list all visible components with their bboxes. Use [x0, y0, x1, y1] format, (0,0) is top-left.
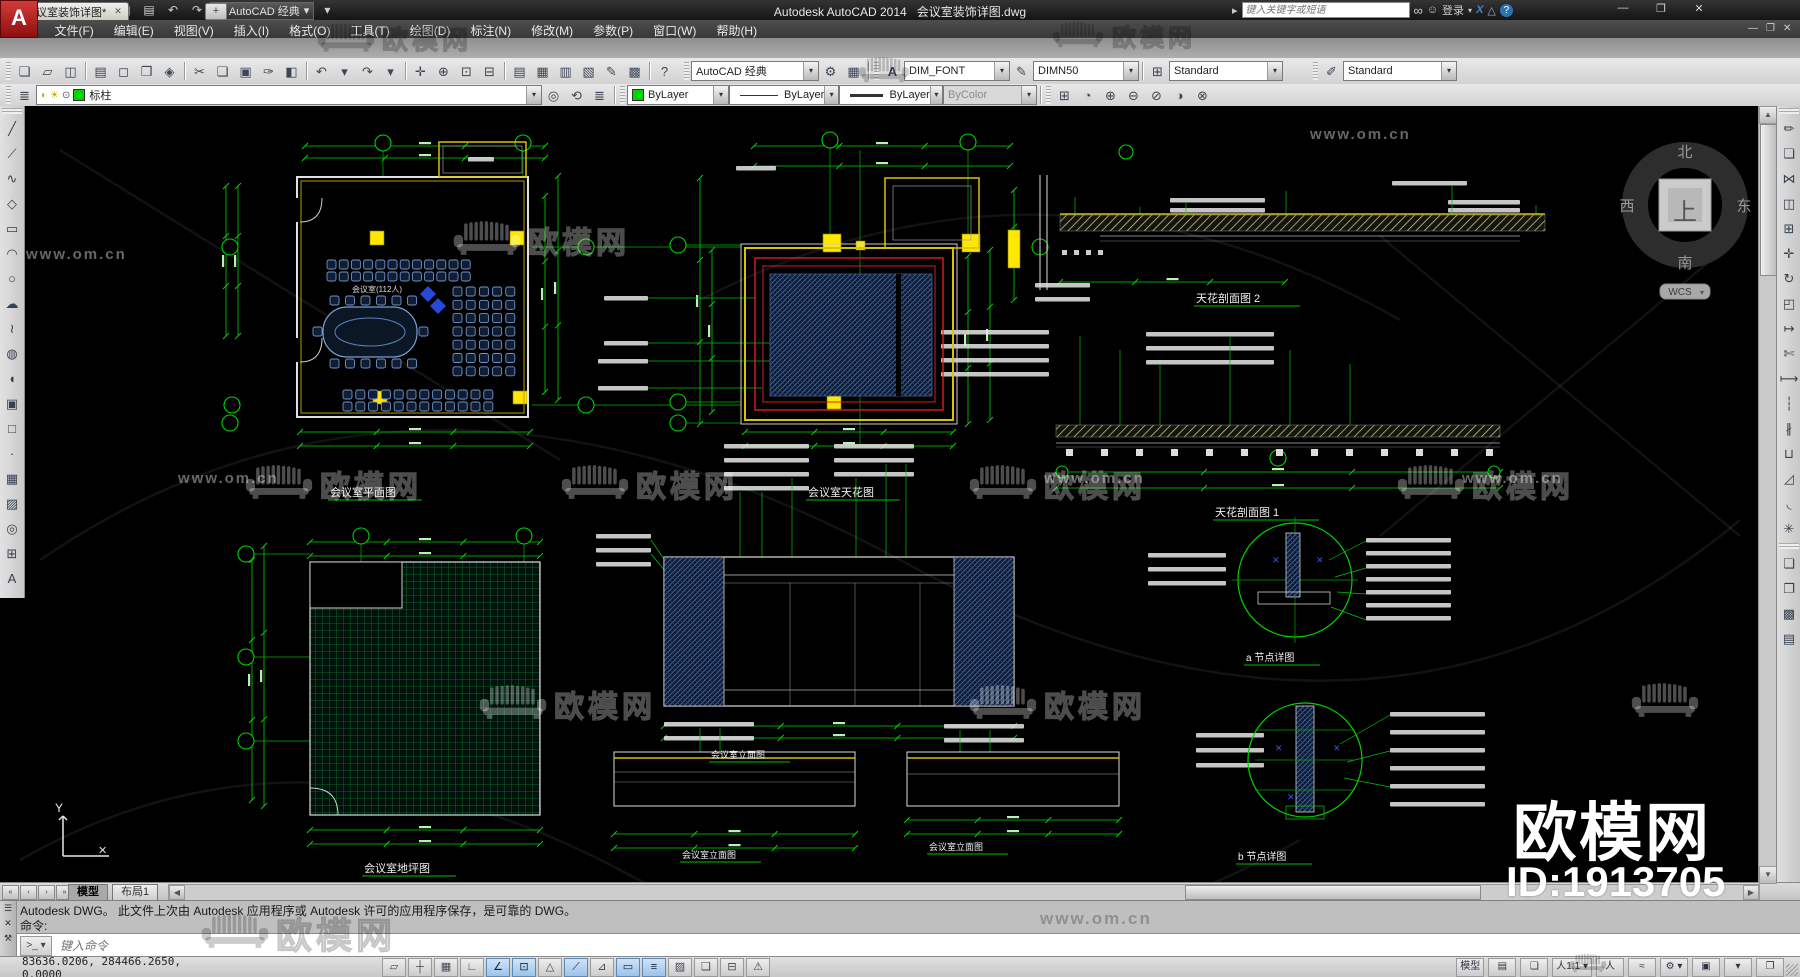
named-views-icon[interactable]: ⊞	[1053, 85, 1076, 106]
vp-add-icon[interactable]: ⊕	[1099, 85, 1122, 106]
open-icon[interactable]: ▱	[36, 61, 59, 82]
qnew-icon[interactable]: ❏	[13, 61, 36, 82]
block-editor-icon[interactable]: ◧	[280, 61, 303, 82]
layer-combo[interactable]: ◐ ☀ ⊙ 标柱 ▾	[36, 85, 542, 105]
svg-text:✕: ✕	[1287, 792, 1295, 802]
circle-icon[interactable]: ○	[0, 266, 24, 291]
scroll-left-icon[interactable]: ◀	[169, 885, 185, 900]
designcenter-icon[interactable]: ▦	[531, 61, 554, 82]
match-properties-icon[interactable]: ✑	[257, 61, 280, 82]
section1-title: 天花剖面图 1	[1215, 505, 1279, 519]
workspace-monitor-icon[interactable]: ▦	[842, 61, 865, 82]
coordinates-readout: 83636.0206, 284466.2650, 0.0000	[0, 955, 222, 977]
node-detail-b	[1248, 703, 1362, 819]
menu-bar: 文件(F)编辑(E)视图(V)插入(I)格式(O)工具(T)绘图(D)标注(N)…	[0, 20, 1800, 39]
file-tab-bar	[0, 38, 1800, 59]
tab-model[interactable]: 模型	[68, 884, 108, 901]
plot-preview-icon[interactable]: ◻	[112, 61, 135, 82]
undo-icon[interactable]: ↶	[310, 61, 333, 82]
etransmit-icon[interactable]: ◈	[158, 61, 181, 82]
clean-screen-icon[interactable]: ❐	[1756, 958, 1784, 977]
prev-tab-icon[interactable]: ‹	[20, 885, 37, 900]
annotation-scale-button[interactable]: 人1:1 ▾	[1552, 958, 1592, 977]
svg-text:✕: ✕	[1316, 555, 1324, 565]
minimize-button[interactable]: —	[1610, 2, 1636, 15]
doc-close-button[interactable]: ✕	[1783, 23, 1791, 34]
arc-icon[interactable]: ◠	[0, 241, 24, 266]
region-icon[interactable]: ◎	[0, 516, 24, 541]
snap-toggle[interactable]: ┼	[408, 958, 432, 977]
mirror-icon[interactable]: ⋈	[1777, 166, 1800, 191]
zoom-previous-icon[interactable]: ⊟	[478, 61, 501, 82]
otrack-toggle[interactable]: ⟋	[564, 958, 588, 977]
vp-remove-icon[interactable]: ⊖	[1122, 85, 1145, 106]
doc-minimize-button[interactable]: —	[1748, 23, 1758, 34]
viewcube-north-label[interactable]: 北	[1677, 144, 1692, 161]
ucs-y-label: Y	[55, 801, 63, 815]
save-icon[interactable]: ◫	[59, 61, 82, 82]
bring-above-icon[interactable]: ▩	[1777, 601, 1800, 626]
grid-toggle[interactable]: ▦	[434, 958, 458, 977]
ellipse-icon[interactable]: ◍	[0, 341, 24, 366]
layer-bulb-icon: ◐	[41, 90, 47, 101]
properties-icon[interactable]: ▤	[508, 61, 531, 82]
osnap3d-toggle[interactable]: △	[538, 958, 562, 977]
viewcube-top-label[interactable]: 上	[1673, 199, 1697, 226]
qat-customize-arrow-icon[interactable]: ▾	[316, 1, 338, 20]
model-space-button[interactable]: 模型	[1456, 958, 1484, 977]
infer-constraints-toggle[interactable]: ▱	[382, 958, 406, 977]
exchange-apps-icon[interactable]: X	[1476, 4, 1483, 16]
layers-toolbar: ≣ ◐ ☀ ⊙ 标柱 ▾ ◎⟲≣ ByLayer▾ ByLayer▾ ByLay…	[0, 84, 1800, 107]
table-icon[interactable]: ⊞	[0, 541, 24, 566]
table-style-icon[interactable]: ⊞	[1146, 61, 1169, 82]
copy-icon[interactable]: ❏	[1777, 141, 1800, 166]
viewcube-south-label[interactable]: 南	[1677, 255, 1692, 272]
layer-color-swatch	[73, 89, 85, 101]
chevron-down-icon: ▾	[304, 4, 310, 17]
viewcube[interactable]: 上 北 南 西 东 WCS ▾	[1619, 144, 1751, 299]
cad-drawing: ✕✕✕✕✕	[0, 106, 1758, 882]
tab-nav-buttons: «‹›»	[2, 885, 73, 900]
mleader-style-icon[interactable]: ✐	[1320, 61, 1343, 82]
scale-icon[interactable]: ◰	[1777, 291, 1800, 316]
offset-icon[interactable]: ◫	[1777, 191, 1800, 216]
redo-arrow-icon[interactable]: ▾	[379, 61, 402, 82]
workspace-settings-icon[interactable]: ⚙	[819, 61, 842, 82]
revcloud-icon[interactable]: ☁	[0, 291, 24, 316]
scroll-up-icon[interactable]: ▲	[1759, 106, 1777, 124]
spline-icon[interactable]: ≀	[0, 316, 24, 341]
stretch-icon[interactable]: ↦	[1777, 316, 1800, 341]
send-under-icon[interactable]: ▤	[1777, 626, 1800, 651]
text-style-combo[interactable]: DIM_FONT▾	[904, 61, 1010, 81]
section2-title: 天花剖面图 2	[1196, 291, 1260, 305]
room-label: 会议室(112人)	[352, 284, 402, 294]
standard-toolbar: ❏▱◫▤◻❒◈✂❏▣✑◧↶▾↷▾✛⊕⊡⊟▤▦▥▧✎▩? AutoCAD 经典▾ …	[0, 58, 1800, 85]
plot-icon[interactable]: ▤	[138, 1, 160, 20]
draw-toolbar: ╱⟋∿◇▭◠○☁≀◍◖▣□·▦▨◎⊞A	[0, 106, 25, 598]
document-window-controls: — ❐ ✕	[1748, 23, 1791, 34]
ortho-toggle[interactable]: ∟	[460, 958, 484, 977]
break-icon[interactable]: ∦	[1777, 416, 1800, 441]
viewcube-west-label[interactable]: 西	[1619, 198, 1634, 215]
restore-button[interactable]: ❐	[1648, 2, 1674, 15]
quick-view-layouts-icon[interactable]: ▤	[1488, 958, 1516, 977]
ceiling-section-2	[1040, 175, 1545, 290]
redo-icon[interactable]: ↷	[356, 61, 379, 82]
explode-icon[interactable]: ✳	[1777, 516, 1800, 541]
command-line-panel: ☰ ✕ ⚒ Autodesk DWG。 此文件上次由 Autodesk 应用程序…	[0, 900, 1800, 957]
lineweight-combo[interactable]: ByLayer▾	[839, 85, 943, 105]
ducs-toggle[interactable]: ⊿	[590, 958, 614, 977]
scroll-down-icon[interactable]: ▼	[1759, 866, 1777, 884]
chevron-down-icon[interactable]: ▾	[1468, 6, 1472, 15]
new-tab-button[interactable]: +	[205, 3, 227, 20]
cut-icon[interactable]: ✂	[188, 61, 211, 82]
plotstyle-combo: ByColor▾	[943, 85, 1037, 105]
viewcube-east-label[interactable]: 东	[1736, 198, 1751, 215]
erase-icon[interactable]: ✏	[1777, 116, 1800, 141]
undo-icon[interactable]: ↶	[162, 1, 184, 20]
rotate-icon[interactable]: ↻	[1777, 266, 1800, 291]
elev-left-title: 会议室立面图	[682, 849, 736, 860]
osnap-toggle[interactable]: ⊡	[512, 958, 536, 977]
dim-style-icon[interactable]: ✎	[1010, 61, 1033, 82]
zoom-window-icon[interactable]: ⊡	[455, 61, 478, 82]
insert-block-icon[interactable]: ▣	[0, 391, 24, 416]
annotation-monitor-toggle[interactable]: ⚠	[746, 958, 770, 977]
floor-finish-plan	[310, 562, 540, 815]
make-block-icon[interactable]: □	[0, 416, 24, 441]
command-customize-icon[interactable]: ⚒	[4, 933, 12, 944]
zoom-realtime-icon[interactable]: ⊕	[432, 61, 455, 82]
plot-icon[interactable]: ▤	[89, 61, 112, 82]
status-bar: 83636.0206, 284466.2650, 0.0000 ▱┼▦∟∠⊡△⟋…	[0, 956, 1800, 977]
user-icon: ☺	[1427, 4, 1438, 16]
dyn-toggle[interactable]: ▭	[616, 958, 640, 977]
layer-lock-icon: ⊙	[62, 90, 70, 101]
command-history: Autodesk DWG。 此文件上次由 Autodesk 应用程序或 Auto…	[20, 904, 1720, 934]
rectangle-icon[interactable]: ▭	[0, 216, 24, 241]
svg-text:✕: ✕	[1272, 555, 1280, 565]
status-right-tools: 模型▤❏人1:1 ▾人≈⚙ ▾▣▾❐	[1456, 958, 1800, 977]
infocenter-arrow-icon[interactable]: ▸	[1232, 4, 1238, 17]
tray-icon[interactable]: ▾	[1724, 958, 1752, 977]
gradient-icon[interactable]: ▨	[0, 491, 24, 516]
horizontal-scrollbar[interactable]: ◀ ▶	[168, 884, 1760, 901]
application-menu-button[interactable]: A	[0, 0, 38, 38]
transparency-toggle[interactable]: ▨	[668, 958, 692, 977]
elev-right-title: 会议室立面图	[929, 841, 983, 852]
status-toggles: ▱┼▦∟∠⊡△⟋⊿▭≡▨❑⊟⚠	[382, 958, 770, 977]
make-object-layer-current-icon[interactable]: ◎	[542, 85, 565, 106]
drawing-canvas[interactable]: ✕✕✕✕✕	[0, 106, 1758, 882]
command-prompt-button[interactable]: >_ ▾	[20, 936, 52, 956]
close-button[interactable]: ✕	[1686, 2, 1712, 15]
workspace-switch-icon[interactable]: ⚙ ▾	[1660, 958, 1688, 977]
window-title: Autodesk AutoCAD 2014 会议室装饰详图.dwg	[600, 3, 1200, 20]
ellipse-arc-icon[interactable]: ◖	[0, 366, 24, 391]
publish-icon[interactable]: ❒	[135, 61, 158, 82]
extend-icon[interactable]: ⟼	[1777, 366, 1800, 391]
linetype-combo[interactable]: ByLayer▾	[729, 85, 839, 105]
detail-a-title: a 节点详图	[1246, 651, 1294, 664]
mtext-icon[interactable]: A	[0, 566, 24, 591]
quick-properties-toggle[interactable]: ❑	[694, 958, 718, 977]
command-prompt: 命令:	[20, 919, 1720, 934]
command-strip: ☰ ✕ ⚒	[0, 901, 17, 959]
vp-shade-icon[interactable]: ◑	[1168, 85, 1191, 106]
polar-toggle[interactable]: ∠	[486, 958, 510, 977]
file-tab-close-icon[interactable]: ✕	[114, 6, 122, 17]
undo-arrow-icon[interactable]: ▾	[333, 61, 356, 82]
layer-previous-icon[interactable]: ⟲	[565, 85, 588, 106]
sheet-set-icon[interactable]: ▧	[577, 61, 600, 82]
pan-icon[interactable]: ✛	[409, 61, 432, 82]
tab-layout1[interactable]: 布局1	[112, 884, 158, 901]
break-point-icon[interactable]: ┆	[1777, 391, 1800, 416]
scroll-right-icon[interactable]: ▶	[1743, 885, 1759, 900]
hatch-icon[interactable]: ▦	[0, 466, 24, 491]
infocenter: ▸ ∞ ☺ 登录 ▾ X △ ?	[1232, 2, 1513, 18]
dim-style-combo[interactable]: DIMN50▾	[1033, 61, 1139, 81]
layout-tab-bar: «‹›» 模型 布局1 ◀ ▶	[0, 882, 1800, 901]
crosshair-cursor: ✕	[98, 845, 107, 857]
array-icon[interactable]: ⊞	[1777, 216, 1800, 241]
autocad-window: A ❏▱◫◪▤↶↷ ⚙ AutoCAD 经典 ▾ ▾ Autodesk Auto…	[0, 0, 1800, 977]
search-icon[interactable]: ∞	[1414, 3, 1423, 18]
svg-text:✕: ✕	[1275, 743, 1283, 753]
detail-b-title: b 节点详图	[1238, 850, 1286, 863]
quick-view-drawings-icon[interactable]: ❏	[1520, 958, 1548, 977]
command-grip[interactable]: ☰	[4, 903, 12, 914]
next-tab-icon[interactable]: ›	[38, 885, 55, 900]
modify-toolbar: ✏❏⋈◫⊞✛↻◰↦✄⟼┆∦⊔◿◟✳ ❏❐▩▤	[1776, 106, 1800, 882]
help-icon[interactable]: ?	[653, 61, 676, 82]
current-layer-label: 标柱	[89, 87, 111, 103]
mleader-style-combo[interactable]: Standard▾	[1343, 61, 1457, 81]
workspace-label: AutoCAD 经典	[229, 3, 300, 19]
vp-delete-icon[interactable]: ⊗	[1191, 85, 1214, 106]
tool-palettes-icon[interactable]: ▥	[554, 61, 577, 82]
paste-icon[interactable]: ▣	[234, 61, 257, 82]
window-controls: — ❐ ✕	[1610, 2, 1712, 15]
chamfer-icon[interactable]: ◿	[1777, 466, 1800, 491]
command-input[interactable]	[52, 939, 1800, 953]
elevation-main	[664, 557, 1014, 706]
command-history-line: Autodesk DWG。 此文件上次由 Autodesk 应用程序或 Auto…	[20, 904, 1720, 919]
elevation-left	[614, 752, 855, 806]
first-tab-icon[interactable]: «	[2, 885, 19, 900]
workspace-toolbar-combo[interactable]: AutoCAD 经典▾	[691, 61, 819, 81]
command-close-icon[interactable]: ✕	[4, 918, 12, 929]
layer-states-icon[interactable]: ≣	[588, 85, 611, 106]
text-style-icon[interactable]: A	[881, 61, 904, 82]
markup-icon[interactable]: ✎	[600, 61, 623, 82]
move-icon[interactable]: ✛	[1777, 241, 1800, 266]
table-style-combo[interactable]: Standard▾	[1169, 61, 1283, 81]
floor-title: 会议室地坪图	[364, 861, 430, 875]
toolbar-lock-icon[interactable]: ▣	[1692, 958, 1720, 977]
layer-properties-icon[interactable]: ≣	[13, 85, 36, 106]
polygon-icon[interactable]: ◇	[0, 191, 24, 216]
vp-clip-icon[interactable]: ⊘	[1145, 85, 1168, 106]
color-swatch	[632, 89, 644, 101]
ceiling-title: 会议室天花图	[808, 485, 874, 499]
selection-cycling-toggle[interactable]: ⊟	[720, 958, 744, 977]
search-input[interactable]	[1242, 2, 1410, 18]
polyline-icon[interactable]: ∿	[0, 166, 24, 191]
watermark-curves	[20, 150, 1740, 882]
wcs-dropdown[interactable]: WCS	[1668, 287, 1692, 298]
layer-sun-icon: ☀	[50, 90, 59, 101]
line-icon[interactable]: ╱	[0, 116, 24, 141]
vertical-scrollbar[interactable]: ▲ ▼	[1758, 106, 1777, 882]
node-detail-a	[1232, 517, 1358, 643]
elev-main-title: 会议室立面图	[711, 749, 765, 760]
lwt-toggle[interactable]: ≡	[642, 958, 666, 977]
vertical-scroll-thumb[interactable]	[1760, 124, 1777, 276]
quickcalc-icon[interactable]: ▩	[623, 61, 646, 82]
help-icon[interactable]: ?	[1500, 4, 1513, 17]
join-icon[interactable]: ⊔	[1777, 441, 1800, 466]
color-combo[interactable]: ByLayer▾	[627, 85, 729, 105]
copy-clip-icon[interactable]: ❏	[211, 61, 234, 82]
ceiling-section-1	[1056, 425, 1500, 447]
signin-link[interactable]: 登录	[1442, 2, 1464, 18]
svg-text:▾: ▾	[1700, 288, 1704, 297]
resize-grip[interactable]	[1786, 964, 1798, 976]
autoscale-icon[interactable]: ≈	[1628, 958, 1656, 977]
annotation-visibility-icon[interactable]: 人	[1596, 958, 1624, 977]
point-icon[interactable]: ·	[0, 441, 24, 466]
vp-single-icon[interactable]: ◔	[1076, 85, 1099, 106]
horizontal-scroll-thumb[interactable]	[1185, 885, 1481, 900]
trim-icon[interactable]: ✄	[1777, 341, 1800, 366]
bring-front-icon[interactable]: ❏	[1777, 551, 1800, 576]
plan-title: 会议室平面图	[330, 485, 396, 499]
fillet-icon[interactable]: ◟	[1777, 491, 1800, 516]
doc-restore-button[interactable]: ❐	[1766, 23, 1775, 34]
construction-line-icon[interactable]: ⟋	[0, 141, 24, 166]
a360-icon[interactable]: △	[1487, 4, 1495, 17]
svg-text:✕: ✕	[1333, 743, 1341, 753]
elevation-right	[907, 752, 1119, 806]
send-back-icon[interactable]: ❐	[1777, 576, 1800, 601]
